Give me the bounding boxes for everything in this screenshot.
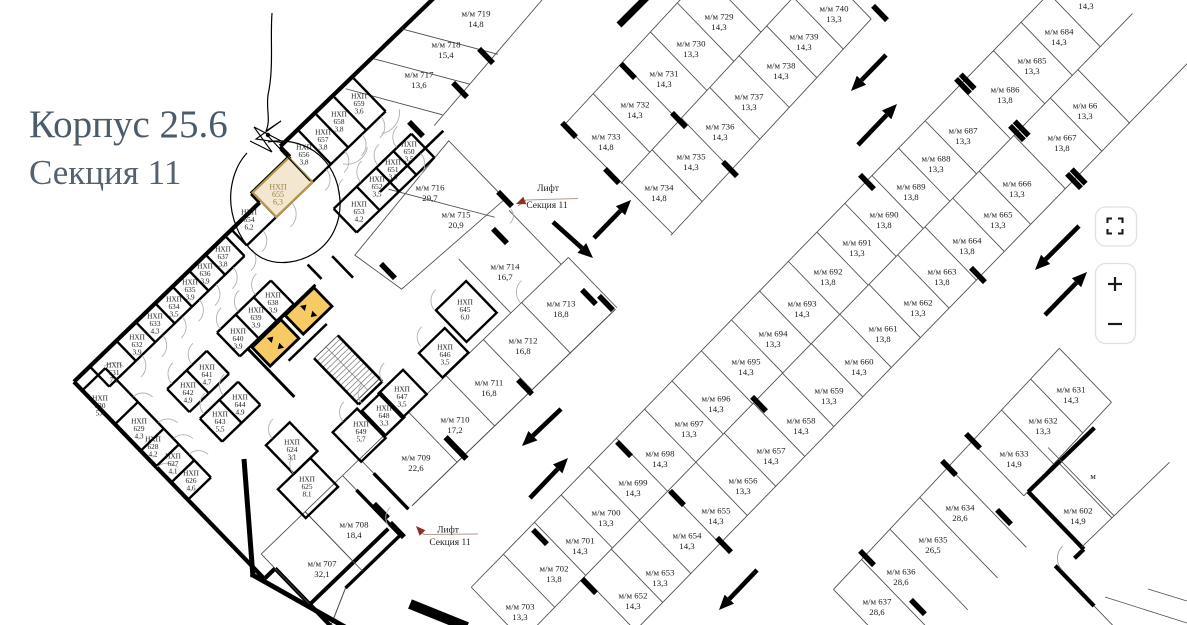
svg-text:3,5: 3,5: [388, 173, 397, 182]
svg-text:14,3: 14,3: [712, 132, 728, 142]
svg-text:м/м 740: м/м 740: [820, 4, 850, 14]
svg-text:м/м 659: м/м 659: [815, 386, 845, 396]
svg-text:13,3: 13,3: [826, 14, 842, 24]
svg-text:м/м 652: м/м 652: [619, 591, 648, 601]
svg-text:26,5: 26,5: [925, 545, 941, 555]
svg-text:м/м 731: м/м 731: [650, 69, 679, 79]
svg-text:14,9: 14,9: [1006, 459, 1022, 469]
svg-text:3,8: 3,8: [299, 158, 308, 167]
svg-text:м/м 739: м/м 739: [790, 32, 820, 42]
svg-text:м/м 703: м/м 703: [506, 602, 536, 612]
svg-text:13,3: 13,3: [598, 518, 614, 528]
svg-text:м/м 657: м/м 657: [757, 446, 787, 456]
svg-text:5,7: 5,7: [356, 435, 365, 444]
svg-text:м/м 653: м/м 653: [646, 568, 676, 578]
svg-text:3,8: 3,8: [218, 260, 227, 269]
svg-text:3,9: 3,9: [268, 306, 277, 315]
svg-text:3,1: 3,1: [287, 453, 296, 462]
svg-text:17,2: 17,2: [447, 425, 462, 435]
svg-text:14,3: 14,3: [1078, 1, 1094, 11]
svg-text:м/м 708: м/м 708: [340, 520, 370, 530]
svg-text:м/м 660: м/м 660: [845, 357, 875, 367]
svg-text:м/м 686: м/м 686: [991, 85, 1021, 95]
svg-text:3,5: 3,5: [372, 190, 381, 199]
svg-text:м/м 684: м/м 684: [1045, 27, 1075, 37]
svg-text:м/м 707: м/м 707: [308, 559, 338, 569]
svg-text:м/м 665: м/м 665: [984, 210, 1014, 220]
svg-text:14,3: 14,3: [1063, 395, 1079, 405]
svg-text:3,5: 3,5: [169, 310, 178, 319]
svg-text:м/м 719: м/м 719: [462, 9, 492, 19]
svg-text:м: м: [1090, 471, 1096, 481]
svg-text:13,3: 13,3: [990, 220, 1006, 230]
svg-text:м/м 737: м/м 737: [735, 92, 765, 102]
svg-text:14,3: 14,3: [793, 426, 809, 436]
svg-text:3,9: 3,9: [233, 342, 242, 351]
svg-text:28,6: 28,6: [869, 607, 885, 617]
svg-text:6,2: 6,2: [244, 223, 253, 232]
svg-text:14,3: 14,3: [763, 456, 779, 466]
svg-text:3,8: 3,8: [334, 125, 343, 134]
svg-text:3,9: 3,9: [200, 277, 209, 286]
svg-text:14,3: 14,3: [794, 309, 810, 319]
svg-text:14,3: 14,3: [679, 541, 695, 551]
svg-text:м/м 735: м/м 735: [677, 152, 707, 162]
svg-text:16,8: 16,8: [515, 346, 531, 356]
svg-text:м/м 666: м/м 666: [1003, 179, 1033, 189]
svg-text:м/м 654: м/м 654: [673, 531, 703, 541]
svg-text:3,9: 3,9: [185, 293, 194, 302]
svg-text:13,8: 13,8: [1054, 143, 1070, 153]
svg-text:14,8: 14,8: [598, 142, 614, 152]
svg-text:Секция 11: Секция 11: [29, 153, 181, 192]
svg-text:м/м 602: м/м 602: [1064, 506, 1093, 516]
svg-text:м/м 715: м/м 715: [442, 210, 472, 220]
svg-text:3,5: 3,5: [404, 155, 413, 164]
svg-text:13,8: 13,8: [876, 220, 892, 230]
svg-text:м/м 662: м/м 662: [904, 298, 933, 308]
svg-text:м/м 632: м/м 632: [1029, 416, 1058, 426]
svg-text:3,5: 3,5: [397, 400, 406, 409]
svg-text:18,8: 18,8: [553, 309, 569, 319]
svg-text:8,1: 8,1: [302, 490, 311, 499]
svg-text:м/м 692: м/м 692: [814, 267, 843, 277]
svg-text:13,3: 13,3: [955, 136, 971, 146]
svg-text:м/м 685: м/м 685: [1018, 56, 1048, 66]
svg-text:м/м 66: м/м 66: [1073, 101, 1098, 111]
svg-text:4,9: 4,9: [183, 396, 192, 405]
svg-text:14,3: 14,3: [711, 22, 727, 32]
svg-text:м/м 718: м/м 718: [432, 40, 462, 50]
svg-text:13,8: 13,8: [903, 192, 919, 202]
svg-text:14,3: 14,3: [773, 71, 789, 81]
svg-text:4,1: 4,1: [168, 467, 177, 476]
svg-text:6,0: 6,0: [460, 313, 469, 322]
svg-text:20,9: 20,9: [448, 220, 464, 230]
svg-text:Секция 11: Секция 11: [526, 201, 568, 211]
svg-text:4,2: 4,2: [148, 450, 157, 459]
svg-text:4,2: 4,2: [354, 215, 363, 224]
svg-text:14,3: 14,3: [625, 488, 641, 498]
svg-text:Лифт: Лифт: [537, 183, 560, 194]
svg-text:м/м 687: м/м 687: [949, 126, 979, 136]
svg-text:13,3: 13,3: [735, 486, 751, 496]
svg-text:м/м 709: м/м 709: [402, 453, 432, 463]
svg-text:4,6: 4,6: [186, 484, 195, 493]
svg-text:13,6: 13,6: [411, 80, 427, 90]
svg-text:м/м 688: м/м 688: [922, 154, 952, 164]
svg-text:14,3: 14,3: [683, 162, 699, 172]
svg-text:м/м 635: м/м 635: [919, 535, 949, 545]
svg-text:14,8: 14,8: [468, 19, 484, 29]
svg-text:4,3: 4,3: [134, 432, 143, 441]
svg-text:м/м 690: м/м 690: [870, 210, 900, 220]
svg-text:м/м 730: м/м 730: [677, 39, 707, 49]
svg-text:14,8: 14,8: [651, 193, 667, 203]
svg-text:15,4: 15,4: [438, 50, 454, 60]
svg-text:м/м 656: м/м 656: [729, 476, 759, 486]
svg-text:м/м 697: м/м 697: [675, 419, 705, 429]
svg-text:м/м 713: м/м 713: [547, 299, 577, 309]
svg-text:22,6: 22,6: [408, 463, 424, 473]
svg-text:м/м 738: м/м 738: [767, 61, 797, 71]
svg-text:16,8: 16,8: [481, 388, 497, 398]
svg-text:м/м 637: м/м 637: [863, 597, 893, 607]
svg-text:м/м 698: м/м 698: [646, 449, 676, 459]
svg-text:3,3: 3,3: [379, 419, 388, 428]
svg-text:м/м 658: м/м 658: [787, 416, 817, 426]
svg-text:м/м 734: м/м 734: [645, 183, 675, 193]
svg-text:14,3: 14,3: [738, 367, 754, 377]
svg-text:м/м 702: м/м 702: [540, 564, 569, 574]
svg-text:32,1: 32,1: [314, 569, 329, 579]
svg-text:13,8: 13,8: [875, 334, 891, 344]
svg-text:м/м 736: м/м 736: [706, 122, 736, 132]
svg-text:7,1: 7,1: [109, 376, 118, 385]
svg-text:14,3: 14,3: [851, 367, 867, 377]
svg-text:м/м 691: м/м 691: [843, 238, 872, 248]
svg-text:4,9: 4,9: [235, 408, 244, 417]
svg-text:13,3: 13,3: [1009, 189, 1025, 199]
svg-text:3,9: 3,9: [132, 348, 141, 357]
svg-text:5,4: 5,4: [95, 409, 104, 418]
svg-text:3,8: 3,8: [318, 143, 327, 152]
svg-text:13,8: 13,8: [934, 277, 950, 287]
svg-text:м/м 711: м/м 711: [475, 378, 504, 388]
svg-text:13,3: 13,3: [849, 248, 865, 258]
svg-text:13,3: 13,3: [821, 396, 837, 406]
svg-text:29,7: 29,7: [422, 193, 438, 203]
svg-text:м/м 693: м/м 693: [788, 299, 818, 309]
svg-text:13,3: 13,3: [1077, 111, 1093, 121]
svg-text:м/м 717: м/м 717: [405, 70, 435, 80]
svg-text:13,8: 13,8: [959, 246, 975, 256]
svg-text:14,3: 14,3: [627, 110, 643, 120]
svg-text:13,3: 13,3: [681, 429, 697, 439]
svg-text:13,8: 13,8: [997, 95, 1013, 105]
svg-text:14,9: 14,9: [1070, 516, 1086, 526]
svg-text:м/м 661: м/м 661: [869, 324, 898, 334]
svg-text:5,5: 5,5: [215, 425, 224, 434]
svg-text:13,3: 13,3: [910, 308, 926, 318]
svg-text:м/м 701: м/м 701: [566, 536, 595, 546]
svg-text:Корпус 25.6: Корпус 25.6: [29, 103, 228, 146]
svg-text:м/м 664: м/м 664: [953, 236, 983, 246]
svg-text:м/м 633: м/м 633: [1000, 449, 1030, 459]
svg-text:18,4: 18,4: [346, 530, 362, 540]
svg-text:4,7: 4,7: [202, 378, 211, 387]
svg-text:14,3: 14,3: [708, 404, 724, 414]
svg-text:Лифт: Лифт: [437, 525, 460, 536]
svg-text:Секция 11: Секция 11: [429, 538, 471, 548]
svg-text:м/м 732: м/м 732: [621, 100, 650, 110]
svg-text:14,3: 14,3: [625, 601, 641, 611]
svg-text:14,3: 14,3: [708, 516, 724, 526]
svg-text:6,3: 6,3: [273, 198, 283, 207]
svg-text:м/м 694: м/м 694: [759, 329, 789, 339]
svg-text:м/м 714: м/м 714: [491, 262, 521, 272]
svg-text:14,3: 14,3: [652, 459, 668, 469]
svg-text:14,3: 14,3: [796, 42, 812, 52]
svg-text:м/м 631: м/м 631: [1057, 385, 1086, 395]
svg-text:13,3: 13,3: [683, 49, 699, 59]
svg-text:м/м 699: м/м 699: [619, 478, 649, 488]
svg-text:3,9: 3,9: [251, 321, 260, 330]
svg-text:28,6: 28,6: [893, 577, 909, 587]
svg-text:4,3: 4,3: [150, 327, 159, 336]
svg-text:м/м 729: м/м 729: [705, 12, 735, 22]
svg-text:3,5: 3,5: [440, 358, 449, 367]
svg-text:м/м 636: м/м 636: [887, 567, 917, 577]
svg-text:м/м 712: м/м 712: [509, 336, 538, 346]
svg-text:3,6: 3,6: [354, 107, 363, 116]
svg-text:14,3: 14,3: [656, 79, 672, 89]
svg-text:13,3: 13,3: [512, 612, 528, 622]
svg-text:м/м 663: м/м 663: [928, 267, 958, 277]
svg-text:м/м 655: м/м 655: [702, 506, 732, 516]
svg-text:13,3: 13,3: [765, 339, 781, 349]
svg-text:13,3: 13,3: [1035, 426, 1051, 436]
svg-text:13,3: 13,3: [741, 102, 757, 112]
svg-text:16,7: 16,7: [497, 272, 513, 282]
svg-text:м/м 695: м/м 695: [732, 357, 762, 367]
svg-text:м/м 667: м/м 667: [1048, 133, 1078, 143]
svg-text:13,3: 13,3: [928, 164, 944, 174]
svg-text:м/м 634: м/м 634: [946, 503, 976, 513]
svg-text:м/м 710: м/м 710: [441, 415, 471, 425]
svg-text:14,3: 14,3: [572, 546, 588, 556]
svg-text:14,3: 14,3: [1051, 37, 1067, 47]
svg-text:13,8: 13,8: [820, 277, 836, 287]
svg-text:м/м 716: м/м 716: [416, 183, 446, 193]
svg-text:13,3: 13,3: [652, 578, 668, 588]
svg-text:28,6: 28,6: [952, 513, 968, 523]
svg-text:м/м 700: м/м 700: [592, 508, 622, 518]
svg-text:м/м 689: м/м 689: [897, 182, 927, 192]
svg-text:м/м 733: м/м 733: [592, 132, 622, 142]
svg-text:13,3: 13,3: [1024, 66, 1040, 76]
svg-text:13,8: 13,8: [546, 574, 562, 584]
svg-text:м/м 696: м/м 696: [702, 394, 732, 404]
